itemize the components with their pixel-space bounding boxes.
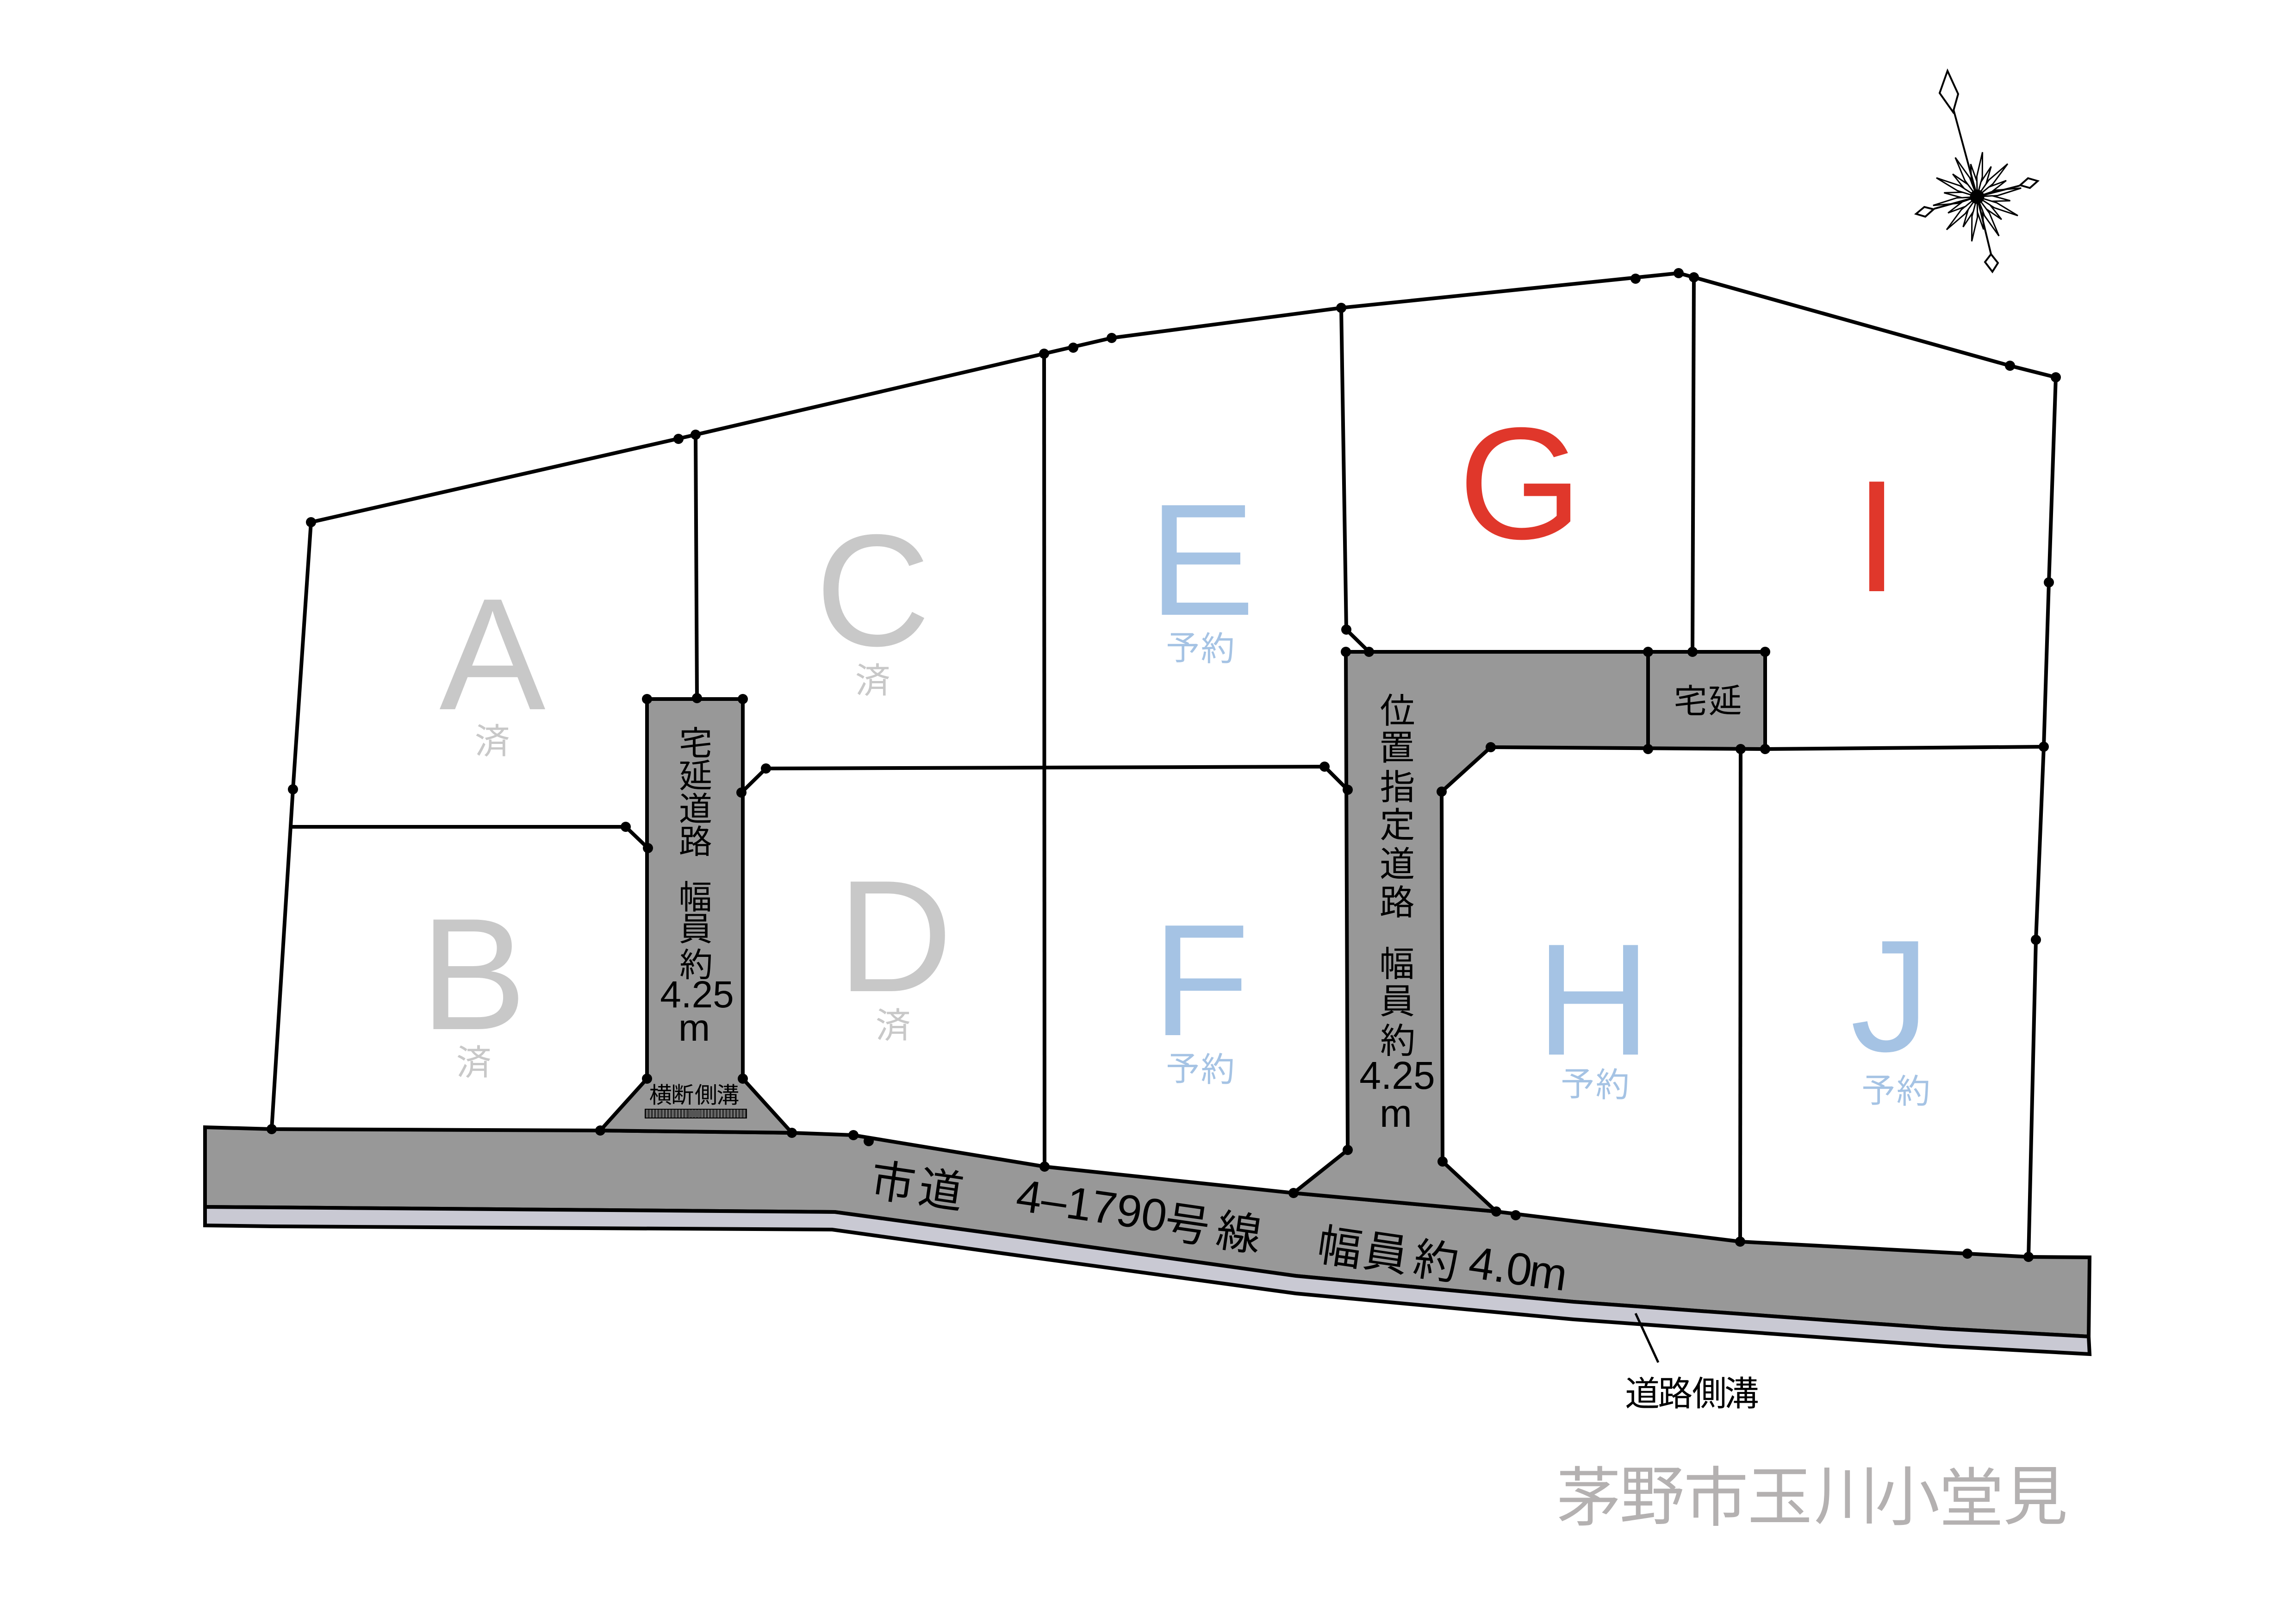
svg-text:B: B [420, 885, 526, 1063]
svg-text:E: E [1149, 471, 1255, 649]
svg-text:C: C [815, 501, 930, 679]
svg-text:D: D [838, 847, 952, 1025]
svg-text:A: A [439, 565, 546, 743]
svg-text:4.0: 4.0 [1466, 1237, 1536, 1296]
svg-text:J: J [1850, 907, 1930, 1085]
svg-text:m: m [1380, 1092, 1412, 1135]
svg-text:F: F [1152, 891, 1250, 1069]
svg-text:4.25: 4.25 [1359, 1054, 1435, 1097]
svg-text:m: m [1526, 1245, 1571, 1301]
svg-text:I: I [1854, 447, 1899, 625]
svg-text:G: G [1458, 394, 1582, 572]
svg-text:H: H [1536, 911, 1651, 1088]
svg-text:m: m [678, 1007, 710, 1049]
